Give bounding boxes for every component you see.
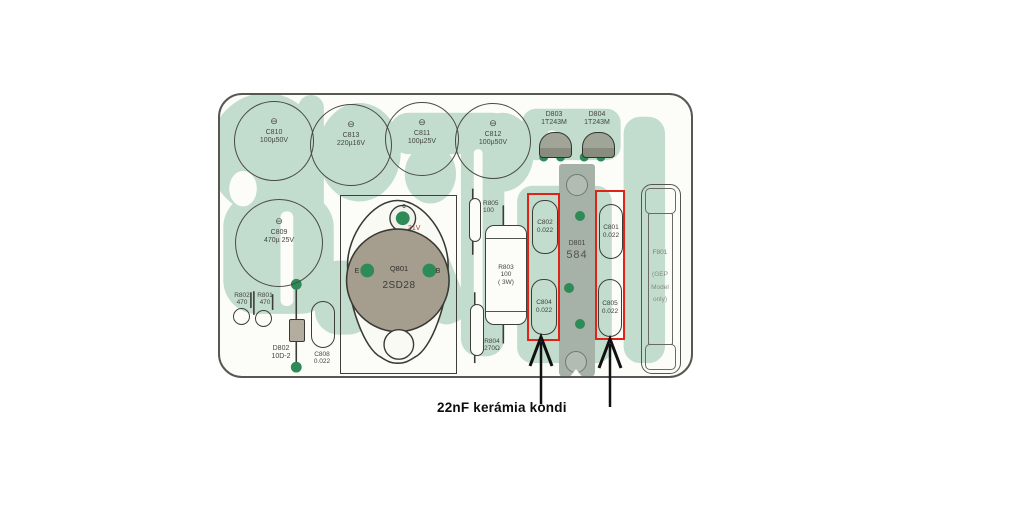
resistor-value: 270Ω [470,345,514,352]
fuse-bottom-cap [645,344,676,370]
solder-pad [575,211,585,221]
strip-notch [569,369,583,378]
fuse-body [648,213,673,345]
polarity-icon: ⊖ [270,117,278,126]
resistor-power: ( 3W) [498,279,514,286]
resistor-r804-label: R804 270Ω [470,338,514,353]
cap-ref: C810 [266,129,283,137]
capacitor-c810: ⊖ C810 100µ50V [234,101,314,181]
cap-value: 100µ25V [408,138,436,146]
diode-d804-body [582,132,615,158]
resistor-ref: R805 [483,200,513,207]
resistor-r803-body: R803 100 ( 3W) [485,225,527,325]
cap-ref: C813 [343,132,360,140]
polarity-icon: ⊖ [347,120,355,129]
solder-pad [564,283,574,293]
cap-ref: C812 [485,131,502,139]
diode-d803-body [539,132,572,158]
resistor-band [486,238,526,239]
heatsink-strip-d801: D801 584 [559,164,595,378]
polarity-icon: ⊖ [418,118,426,127]
cap-value: 470µ 25V [264,237,294,245]
cap-ref: C811 [414,130,430,138]
resistor-value: 100 [483,207,513,214]
transistor-pin-b: B [432,268,444,276]
diode-d802-body [289,319,305,342]
fuse-f801: F801 (GEP Model only) [641,184,681,374]
resistor-ref: R804 [470,338,514,345]
solder-pad [575,319,585,329]
resistor-r801-pad [255,310,272,327]
cap-ref: C809 [271,229,288,237]
pcb-board-outline: ⊖ C810 100µ50V ⊖ C813 220µ16V ⊖ C811 100… [218,93,693,378]
capacitor-c811: ⊖ C811 100µ25V [385,102,459,176]
fuse-ref: F801 [642,249,678,256]
cap-value: 220µ16V [337,140,365,148]
resistor-r805-label: R805 100 [483,200,513,215]
capacitor-c809: ⊖ C809 470µ 25V [235,199,323,287]
resistor-ref: R802 [230,292,254,299]
diode-d804-label: D804 1T243M [568,111,626,127]
capacitor-c812: ⊖ C812 100µ50V [455,103,531,179]
strip-top-hole [566,174,588,196]
capacitor-c808-body [311,301,335,348]
highlight-box-left [527,193,560,341]
polarity-icon: ⊖ [275,217,283,226]
polarity-icon: ⊖ [489,119,497,128]
resistor-r802-pad [233,308,250,325]
diode-d801-ref: D801 [559,240,595,248]
fuse-note-line2: Model [642,284,678,291]
cap-value: 100µ50V [260,137,288,145]
transistor-voltage-mark: 31V [408,225,438,233]
highlight-box-right [595,190,625,340]
scanned-pcb-photo: ⊖ C810 100µ50V ⊖ C813 220µ16V ⊖ C811 100… [0,0,1024,518]
diode-type: 1T243M [568,119,626,127]
resistor-band [486,311,526,312]
transistor-part-number: 2SD28 [369,280,429,292]
resistor-r801-label: R801 470 [253,292,277,307]
transistor-ref: Q801 [377,265,421,274]
resistor-ref: R801 [253,292,277,299]
transistor-pin-e: E [351,268,363,276]
transistor-pin-c: c [398,203,410,211]
annotation-text: 22nF kerámia kondi [437,400,567,415]
resistor-value: 470 [253,299,277,306]
capacitor-c813: ⊖ C813 220µ16V [310,104,392,186]
diode-d802-label: D802 10D-2 [264,345,298,361]
resistor-value: 470 [230,299,254,306]
fuse-note-line1: (GEP [642,271,678,278]
fuse-top-cap [645,188,676,214]
diode-type: 10D-2 [264,353,298,361]
cap-value: 100µ50V [479,139,507,147]
resistor-r805-body [469,198,481,242]
resistor-r802-label: R802 470 [230,292,254,307]
diode-ref: D804 [568,111,626,119]
diode-ref: D802 [264,345,298,353]
resistor-value: 100 [501,271,512,278]
fuse-note-line3: only) [642,296,678,303]
resistor-ref: R803 [498,264,514,271]
diode-d801-type: 584 [559,249,595,262]
